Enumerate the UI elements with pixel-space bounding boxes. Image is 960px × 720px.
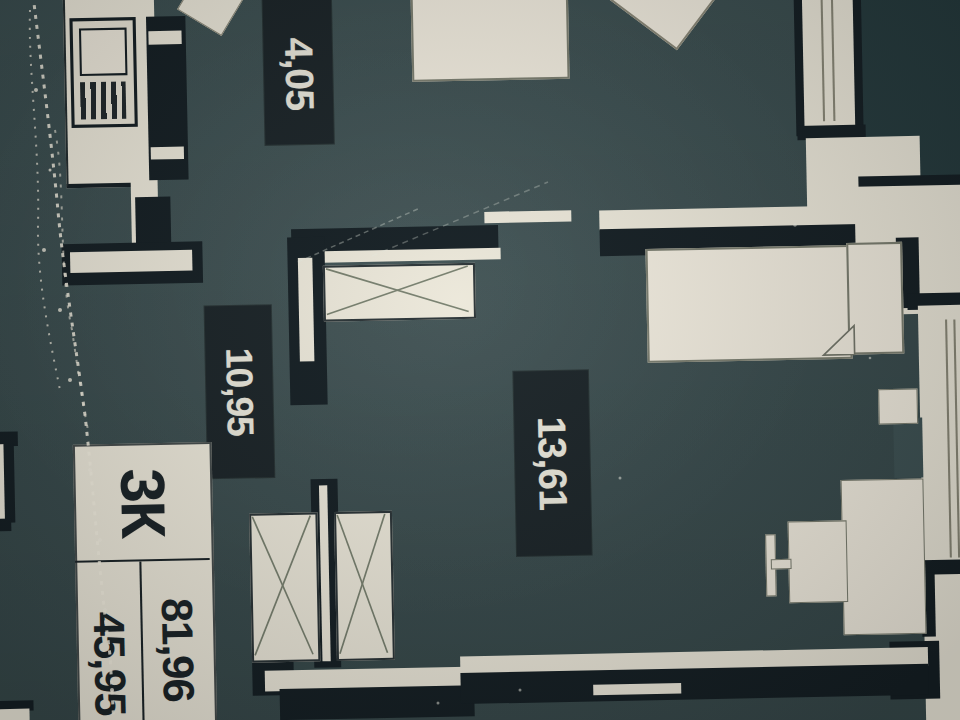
apartment-type-label: 3К: [111, 468, 174, 538]
room-area-value: 4,05: [279, 37, 320, 110]
floor-plan: 4,05 10,95 13,61 8,56 3К 81,96 45,95: [0, 0, 960, 720]
apartment-area-living: 45,95: [87, 611, 133, 715]
room-area-value: 10,95: [220, 347, 259, 436]
floor-plan-photo: 4,05 10,95 13,61 8,56 3К 81,96 45,95: [0, 0, 960, 720]
room-area-value: 13,61: [532, 416, 573, 510]
apartment-area-total: 81,96: [155, 597, 201, 701]
